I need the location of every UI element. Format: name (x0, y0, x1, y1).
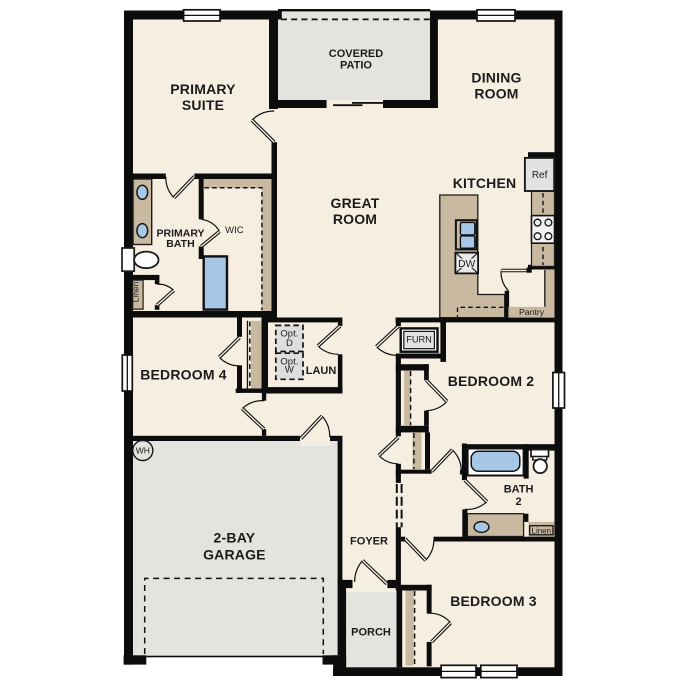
svg-text:FURN: FURN (406, 334, 432, 344)
svg-text:GARAGE: GARAGE (203, 547, 266, 563)
svg-text:BATH: BATH (504, 484, 534, 496)
svg-text:Ref: Ref (532, 170, 548, 181)
svg-text:ROOM: ROOM (333, 211, 377, 227)
svg-text:D: D (286, 338, 293, 349)
svg-text:2-BAY: 2-BAY (214, 530, 256, 546)
svg-text:WH: WH (136, 446, 150, 456)
svg-text:PATIO: PATIO (340, 60, 372, 72)
svg-text:BEDROOM 4: BEDROOM 4 (140, 367, 227, 383)
svg-text:BEDROOM 3: BEDROOM 3 (450, 593, 537, 609)
svg-text:DW: DW (458, 259, 475, 270)
svg-text:ROOM: ROOM (474, 86, 518, 102)
svg-text:PORCH: PORCH (351, 627, 391, 639)
svg-text:LAUN: LAUN (306, 365, 337, 377)
svg-text:SUITE: SUITE (182, 97, 224, 113)
svg-text:Linen: Linen (532, 527, 552, 536)
svg-text:Pantry: Pantry (519, 307, 545, 317)
svg-text:BEDROOM 2: BEDROOM 2 (448, 373, 535, 389)
svg-text:2: 2 (516, 496, 522, 508)
svg-text:W: W (285, 365, 294, 376)
svg-text:BATH: BATH (166, 238, 194, 250)
svg-text:WIC: WIC (225, 225, 244, 236)
svg-text:KITCHEN: KITCHEN (453, 175, 517, 191)
svg-text:FOYER: FOYER (350, 536, 388, 548)
svg-text:PRIMARY: PRIMARY (170, 81, 236, 97)
svg-text:GREAT: GREAT (331, 195, 380, 211)
svg-text:COVERED: COVERED (329, 48, 383, 60)
svg-text:DINING: DINING (471, 70, 521, 86)
svg-text:Linen: Linen (131, 281, 141, 302)
